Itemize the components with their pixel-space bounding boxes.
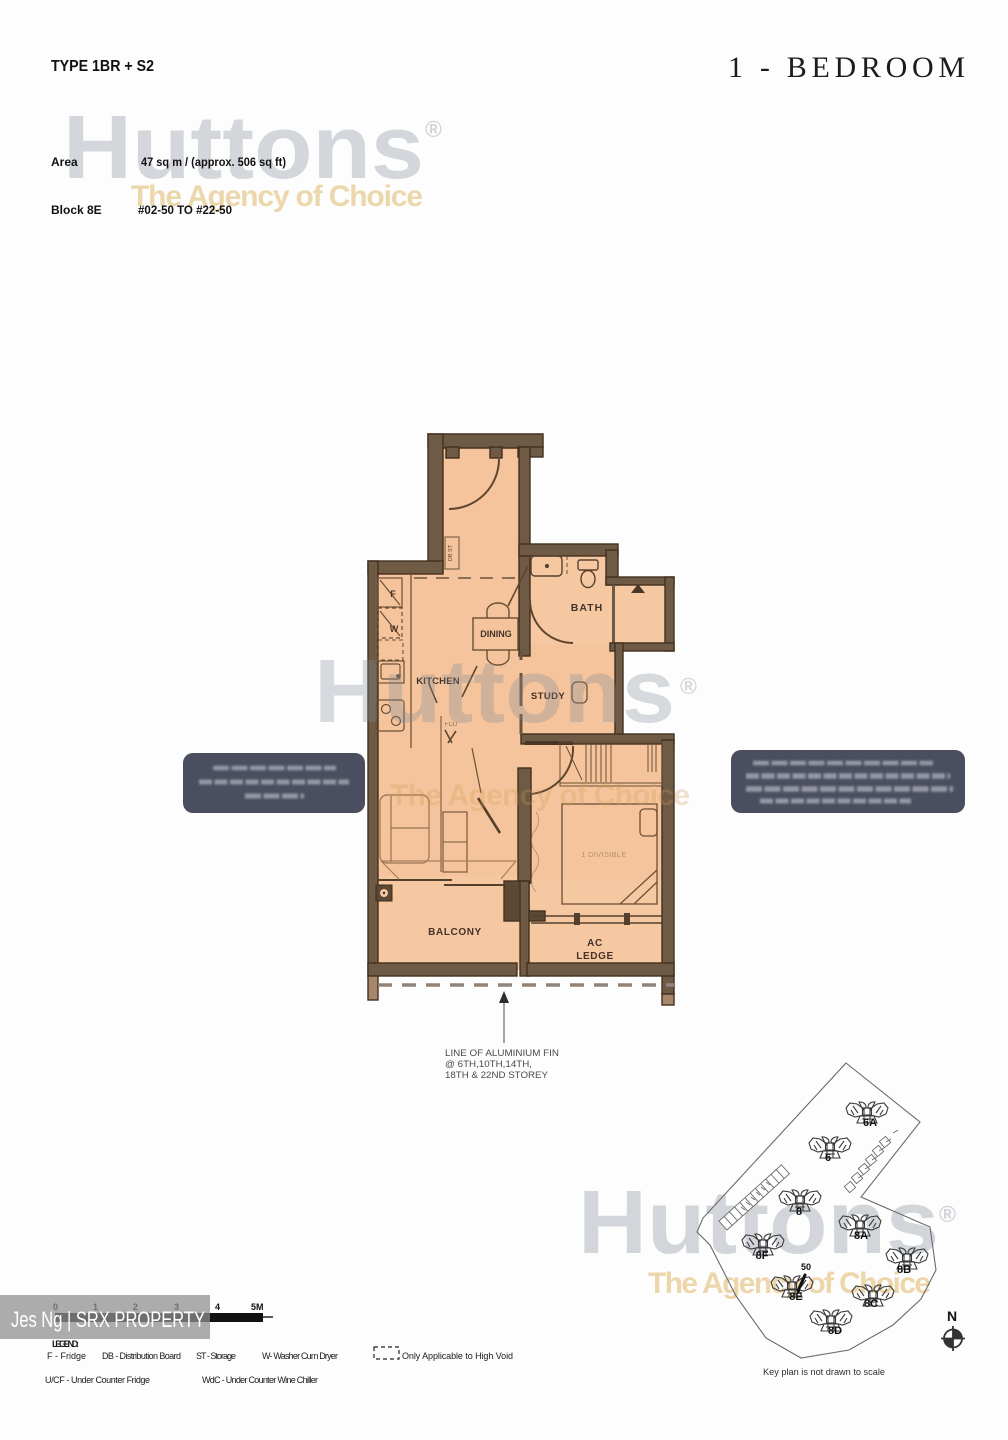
svg-text:Only Applicable to High Void: Only Applicable to High Void: [402, 1351, 513, 1361]
svg-text:LEDGE: LEDGE: [576, 951, 613, 962]
svg-text:U/CF - Under Counter Fridge: U/CF - Under Counter Fridge: [45, 1375, 150, 1385]
svg-text:N: N: [947, 1308, 957, 1324]
svg-text:®: ®: [425, 116, 442, 142]
svg-text:TYPE 1BR + S2: TYPE 1BR + S2: [51, 58, 154, 75]
svg-text:W- Washer Cum Dryer: W- Washer Cum Dryer: [262, 1351, 338, 1361]
svg-text:6A: 6A: [863, 1117, 877, 1129]
svg-text:ST - Storage: ST - Storage: [196, 1351, 236, 1361]
svg-text:@ 6TH,10TH,14TH,: @ 6TH,10TH,14TH,: [445, 1059, 532, 1070]
svg-text:LEGEND:: LEGEND:: [52, 1339, 79, 1349]
svg-text:DB - Distribution Board: DB - Distribution Board: [102, 1351, 181, 1361]
svg-text:W: W: [390, 624, 399, 634]
svg-text:8B: 8B: [897, 1264, 911, 1276]
svg-text:#02-50 TO #22-50: #02-50 TO #22-50: [138, 203, 232, 217]
svg-text:8C: 8C: [864, 1298, 878, 1310]
svg-text:1 DIVISIBLE: 1 DIVISIBLE: [581, 850, 626, 859]
svg-text:8F: 8F: [756, 1250, 769, 1262]
svg-text:F - Fridge: F - Fridge: [47, 1351, 86, 1361]
svg-text:Huttons: Huttons: [314, 642, 675, 742]
svg-text:5M: 5M: [251, 1302, 264, 1312]
svg-text:®: ®: [680, 673, 697, 699]
svg-text:BALCONY: BALCONY: [428, 927, 482, 938]
svg-text:DINING: DINING: [480, 629, 512, 639]
svg-text:8D: 8D: [828, 1325, 842, 1337]
svg-text:8: 8: [796, 1206, 802, 1218]
svg-text:6: 6: [825, 1152, 831, 1164]
svg-text:50: 50: [801, 1262, 811, 1272]
svg-text:Key plan is not drawn to scale: Key plan is not drawn to scale: [763, 1367, 885, 1378]
svg-text:The Agency of Choice: The Agency of Choice: [390, 779, 690, 812]
svg-text:18TH & 22ND STOREY: 18TH & 22ND STOREY: [445, 1070, 549, 1081]
svg-text:8A: 8A: [854, 1230, 868, 1242]
svg-text:8E: 8E: [789, 1291, 802, 1303]
svg-text:4: 4: [215, 1302, 220, 1312]
svg-text:Block 8E: Block 8E: [51, 203, 102, 217]
svg-text:LINE OF ALUMINIUM FIN: LINE OF ALUMINIUM FIN: [445, 1048, 559, 1059]
svg-text:47 sq m / (approx. 506 sq ft): 47 sq m / (approx. 506 sq ft): [141, 155, 286, 169]
svg-text:DB ST: DB ST: [448, 544, 454, 561]
svg-text:BATH: BATH: [571, 602, 603, 614]
svg-text:®: ®: [939, 1201, 956, 1227]
svg-text:Jes Ng | SRX PROPERTY: Jes Ng | SRX PROPERTY: [11, 1307, 205, 1332]
svg-text:1 - BEDROOM: 1 - BEDROOM: [728, 51, 965, 84]
svg-text:Area: Area: [51, 155, 78, 169]
svg-text:AC: AC: [587, 938, 603, 949]
svg-text:F: F: [390, 589, 396, 599]
svg-text:WdC - Under Counter Wine Chill: WdC - Under Counter Wine Chiller: [202, 1375, 318, 1385]
